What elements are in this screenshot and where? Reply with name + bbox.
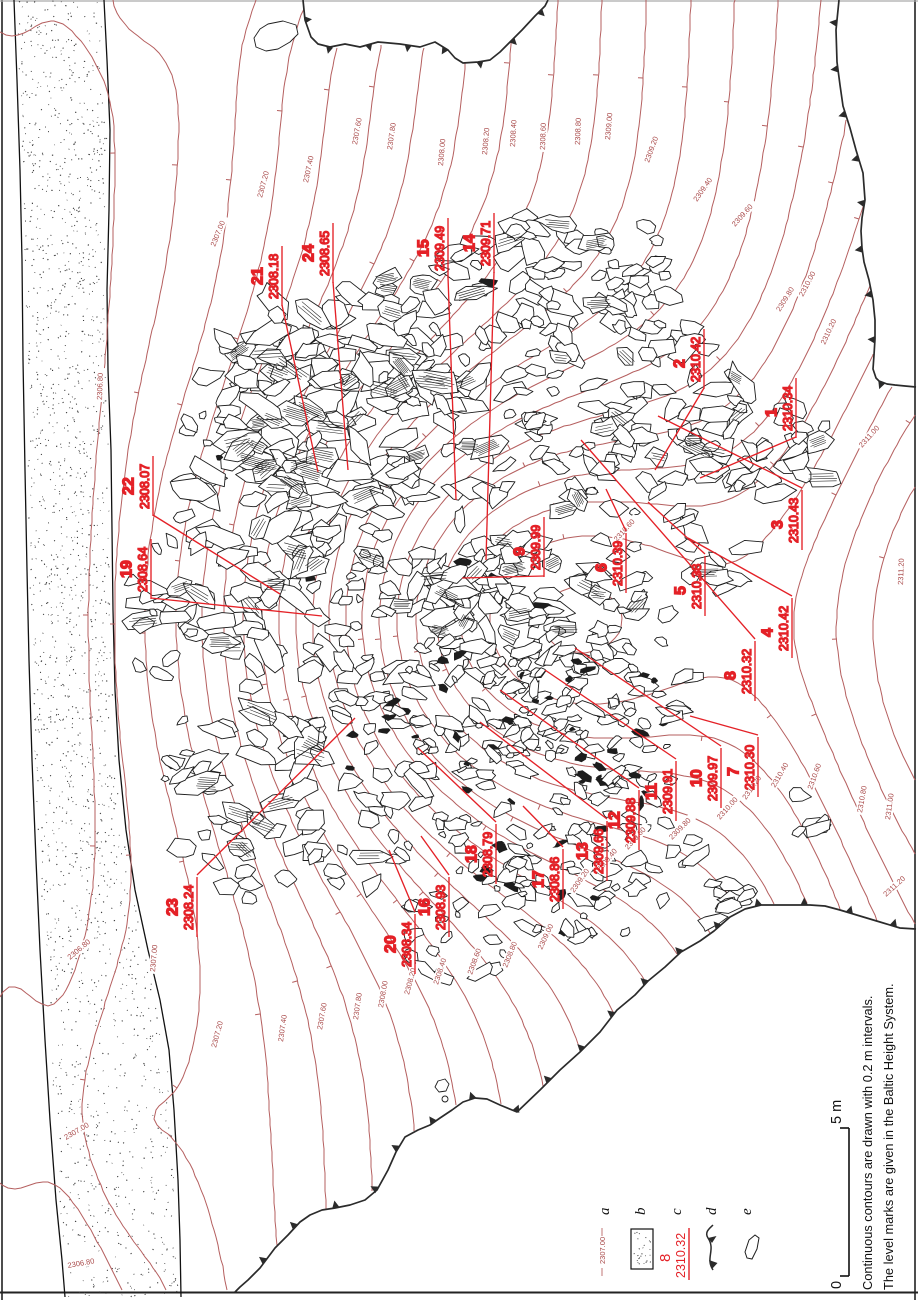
svg-text:22: 22 [121,477,138,495]
svg-text:2310.38: 2310.38 [690,564,704,609]
svg-text:0: 0 [829,1281,845,1289]
svg-text:13: 13 [575,842,592,860]
svg-text:2311.20: 2311.20 [896,558,906,585]
svg-text:2: 2 [672,359,689,368]
svg-text:2309.91: 2309.91 [661,769,675,814]
svg-text:12: 12 [607,811,624,829]
svg-text:2308.86: 2308.86 [548,857,562,902]
svg-text:2308.34: 2308.34 [400,922,414,967]
svg-text:15: 15 [416,239,433,257]
svg-text:c: c [669,1208,685,1215]
svg-text:1: 1 [764,408,781,417]
svg-text:2310.39: 2310.39 [611,541,625,586]
svg-text:3: 3 [770,520,787,529]
svg-text:16: 16 [417,898,434,916]
svg-text:21: 21 [250,267,267,285]
svg-text:2309.66: 2309.66 [592,829,606,874]
svg-text:17: 17 [531,870,548,888]
svg-text:2310.32: 2310.32 [674,1233,688,1278]
svg-text:The level marks are given in t: The level marks are given in the Baltic … [881,983,896,1290]
svg-text:2309.49: 2309.49 [433,226,447,271]
svg-text:2308.40: 2308.40 [508,120,518,148]
svg-text:2308.07: 2308.07 [138,464,152,509]
svg-text:11: 11 [644,783,661,800]
svg-text:2308.24: 2308.24 [182,885,196,930]
svg-text:d: d [704,1207,720,1215]
svg-text:2308.65: 2308.65 [318,231,332,276]
svg-text:6: 6 [594,563,611,572]
svg-text:18: 18 [464,845,481,863]
svg-text:2308.60: 2308.60 [538,123,548,150]
svg-text:a: a [597,1208,613,1216]
svg-text:8: 8 [657,1254,674,1262]
svg-text:24: 24 [301,244,318,262]
svg-text:14: 14 [462,234,479,252]
svg-text:2308.18: 2308.18 [267,254,281,299]
svg-text:b: b [633,1207,649,1215]
svg-text:8: 8 [723,671,740,680]
svg-text:2306.80: 2306.80 [95,373,105,400]
svg-text:2310.42: 2310.42 [777,606,791,651]
svg-text:Continuous contours are drawn: Continuous contours are drawn with 0.2 m… [860,996,875,1290]
svg-text:2309.88: 2309.88 [624,798,638,843]
svg-text:19: 19 [119,560,136,578]
svg-text:5 m: 5 m [829,1100,845,1124]
svg-text:2309.97: 2309.97 [706,756,720,801]
svg-text:2310.30: 2310.30 [743,745,757,790]
svg-text:20: 20 [383,935,400,953]
svg-text:2308.64: 2308.64 [136,547,150,592]
svg-text:23: 23 [165,898,182,916]
svg-text:e: e [739,1208,755,1215]
svg-text:2310.42: 2310.42 [689,337,703,382]
svg-text:2307.00: 2307.00 [598,1237,607,1264]
svg-text:9: 9 [512,547,529,556]
svg-text:4: 4 [760,628,777,637]
svg-text:7: 7 [726,767,743,776]
svg-text:5: 5 [673,586,690,595]
svg-text:2310.34: 2310.34 [781,386,795,431]
svg-text:2308.93: 2308.93 [434,885,448,930]
svg-text:2310.32: 2310.32 [740,649,754,694]
svg-text:2308.80: 2308.80 [573,118,583,145]
svg-text:2308.79: 2308.79 [481,832,495,877]
svg-text:2309.99: 2309.99 [529,525,543,570]
svg-text:10: 10 [689,769,706,787]
svg-text:2310.43: 2310.43 [787,498,801,543]
svg-text:2309.71: 2309.71 [479,221,493,266]
